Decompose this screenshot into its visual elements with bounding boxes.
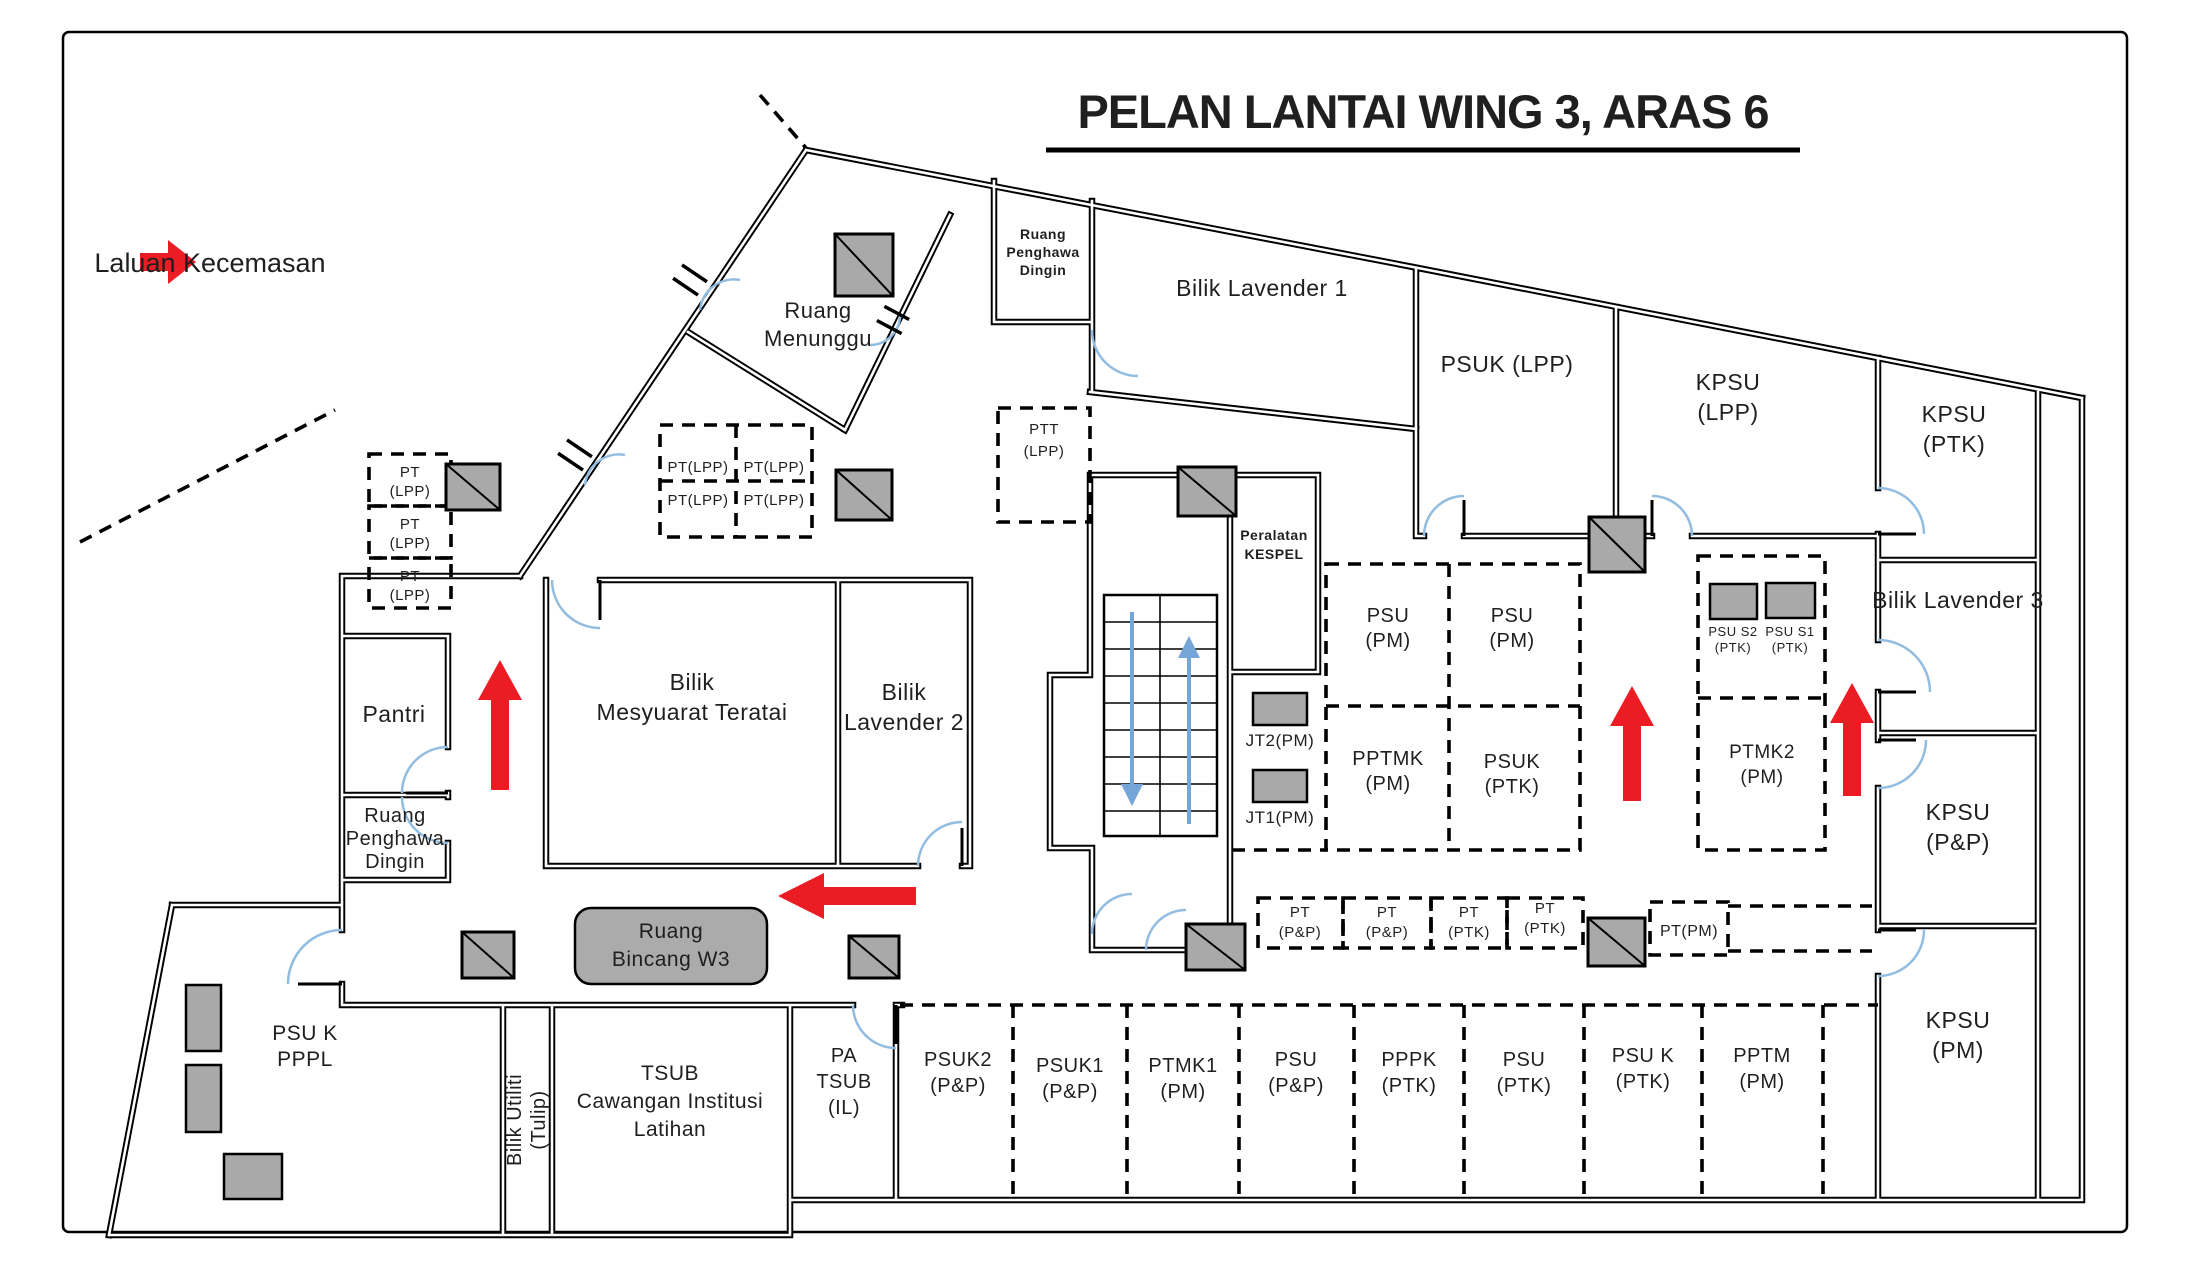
svg-text:(LPP): (LPP) [390, 483, 431, 500]
svg-text:(PTK): (PTK) [1715, 640, 1751, 655]
svg-text:Menunggu: Menunggu [764, 326, 872, 351]
svg-text:(PTK): (PTK) [1616, 1071, 1671, 1093]
svg-text:Mesyuarat Teratai: Mesyuarat Teratai [597, 699, 788, 725]
svg-text:(LPP): (LPP) [390, 535, 431, 552]
label-pt-lpp-g4: PT(LPP) [743, 492, 804, 509]
svg-text:(PM): (PM) [1932, 1037, 1984, 1063]
label-tsub: TSUB [641, 1062, 699, 1085]
svg-text:(P&P): (P&P) [1926, 829, 1990, 855]
label-pptm-pm: PPTM [1733, 1045, 1791, 1067]
svg-text:(PTK): (PTK) [1485, 776, 1540, 798]
label-pt-pnp-b: PT [1377, 904, 1397, 921]
label-psu-pm-a: PSU [1367, 605, 1410, 627]
label-pt-pnp-a: PT [1290, 904, 1310, 921]
label-psuk-ptk: PSUK [1484, 751, 1541, 773]
pillar-icon [446, 464, 500, 510]
svg-text:(PM): (PM) [1740, 767, 1783, 788]
svg-text:(LPP): (LPP) [390, 587, 431, 604]
svg-text:Bincang W3: Bincang W3 [612, 948, 730, 971]
svg-text:(Tulip): (Tulip) [528, 1090, 550, 1149]
label-ptt-lpp: PTT [1029, 421, 1059, 438]
label-kpsu-lpp: KPSU [1696, 369, 1761, 395]
svg-text:KESPEL: KESPEL [1244, 546, 1303, 562]
label-ruang-bincang-w3: Ruang [639, 920, 703, 943]
label-peralatan-kespel: Peralatan [1240, 527, 1308, 543]
label-ptmk2-pm: PTMK2 [1729, 742, 1795, 763]
label-bilik-lavender-1: Bilik Lavender 1 [1176, 275, 1348, 301]
svg-text:Latihan: Latihan [634, 1118, 706, 1141]
label-psu-s1-ptk: PSU S1 [1765, 624, 1814, 639]
label-bilik-mesyuarat-teratai: Bilik [670, 669, 715, 695]
label-pantri: Pantri [362, 701, 425, 727]
svg-text:TSUB: TSUB [816, 1071, 871, 1093]
svg-text:Lavender 2: Lavender 2 [844, 709, 964, 735]
label-pt-pm: PT(PM) [1660, 923, 1718, 940]
svg-text:Penghawa: Penghawa [346, 828, 445, 850]
label-pt-lpp-2: PT [400, 516, 420, 533]
label-ruang-menunggu: Ruang [784, 298, 851, 323]
svg-text:Dingin: Dingin [365, 851, 425, 873]
legend-label: Laluan Kecemasan [94, 248, 325, 278]
svg-text:Dingin: Dingin [1020, 262, 1067, 278]
pillar-icon [462, 932, 514, 978]
svg-text:PPPL: PPPL [277, 1048, 333, 1071]
svg-text:(PM): (PM) [1489, 630, 1534, 652]
label-psuk-lpp: PSUK (LPP) [1441, 351, 1574, 377]
svg-text:(P&P): (P&P) [1279, 924, 1322, 941]
label-ruang-penghawa-dingin-kiri: Ruang [364, 805, 425, 827]
svg-text:(PTK): (PTK) [1382, 1075, 1437, 1097]
svg-text:Bilik Utiliti: Bilik Utiliti [504, 1074, 526, 1166]
floor-plan: PELAN LANTAI WING 3, ARAS 6 Laluan Kecem… [0, 0, 2191, 1264]
svg-text:(PTK): (PTK) [1448, 924, 1490, 941]
label-psu-pnp: PSU [1275, 1049, 1318, 1071]
staircase [1104, 595, 1217, 836]
label-pt-lpp-g1: PT(LPP) [667, 459, 728, 476]
label-pt-ptk-b: PT [1535, 900, 1555, 917]
label-ptmk1-pm: PTMK1 [1148, 1055, 1217, 1077]
label-psuk1-pnp: PSUK1 [1036, 1055, 1104, 1077]
plan-title: PELAN LANTAI WING 3, ARAS 6 [1077, 85, 1768, 138]
svg-text:(P&P): (P&P) [1366, 924, 1409, 941]
label-psu-k-pppl: PSU K [272, 1022, 338, 1045]
jt1-unit [1253, 770, 1307, 802]
furniture-block [186, 1065, 221, 1132]
svg-text:(P&P): (P&P) [1042, 1081, 1098, 1103]
pillar-icon [836, 470, 892, 520]
svg-text:(PTK): (PTK) [1497, 1075, 1552, 1097]
label-kpsu-pnp: KPSU [1926, 799, 1991, 825]
svg-text:(P&P): (P&P) [930, 1075, 986, 1097]
ruang-bincang-w3-block: Ruang Bincang W3 [575, 908, 767, 984]
svg-text:(PM): (PM) [1739, 1071, 1784, 1093]
pillar-icon [1588, 918, 1645, 966]
label-bilik-lavender-3: Bilik Lavender 3 [1872, 587, 2044, 613]
label-pt-lpp-3: PT [400, 568, 420, 585]
svg-text:(PM): (PM) [1365, 773, 1410, 795]
label-psu-ptk: PSU [1503, 1049, 1546, 1071]
pillar-icon [1178, 467, 1236, 516]
svg-text:(PM): (PM) [1365, 630, 1410, 652]
furniture-block [186, 985, 221, 1051]
jt2-unit [1253, 693, 1307, 725]
svg-text:(IL): (IL) [828, 1097, 860, 1119]
label-jt1-pm: JT1(PM) [1246, 808, 1315, 827]
label-kpsu-ptk: KPSU [1922, 401, 1987, 427]
label-pt-ptk-a: PT [1459, 904, 1479, 921]
pillar-icon [849, 936, 899, 978]
label-psuk2-pnp: PSUK2 [924, 1049, 992, 1071]
label-pptmk-pm: PPTMK [1352, 748, 1424, 770]
svg-text:(P&P): (P&P) [1268, 1075, 1324, 1097]
svg-text:(PM): (PM) [1160, 1081, 1205, 1103]
label-bilik-lavender-2: Bilik [882, 679, 927, 705]
label-psu-pm-b: PSU [1491, 605, 1534, 627]
furniture-block [224, 1154, 282, 1199]
svg-text:(PTK): (PTK) [1524, 920, 1566, 937]
pillar-icon [1589, 517, 1645, 572]
svg-text:(PTK): (PTK) [1772, 640, 1808, 655]
psu-s2-unit [1710, 584, 1757, 619]
svg-text:(LPP): (LPP) [1697, 399, 1758, 425]
label-pppk-ptk: PPPK [1381, 1049, 1437, 1071]
svg-text:(LPP): (LPP) [1024, 443, 1065, 460]
pillar-icon [835, 234, 893, 296]
label-pt-lpp-g2: PT(LPP) [743, 459, 804, 476]
label-ruang-penghawa-dingin-atas: Ruang [1020, 226, 1066, 242]
label-pt-lpp-1: PT [400, 464, 420, 481]
label-psu-k-ptk: PSU K [1612, 1045, 1675, 1067]
psu-s1-unit [1766, 583, 1815, 618]
label-kpsu-pm: KPSU [1926, 1007, 1991, 1033]
label-jt2-pm: JT2(PM) [1246, 731, 1315, 750]
pillar-icon [1186, 924, 1245, 970]
label-pa-tsub-il: PA [831, 1045, 857, 1067]
svg-text:Penghawa: Penghawa [1006, 244, 1079, 260]
svg-text:(PTK): (PTK) [1923, 431, 1986, 457]
label-pt-lpp-g3: PT(LPP) [667, 492, 728, 509]
label-psu-s2-ptk: PSU S2 [1708, 624, 1757, 639]
svg-text:Cawangan Institusi: Cawangan Institusi [577, 1090, 763, 1113]
